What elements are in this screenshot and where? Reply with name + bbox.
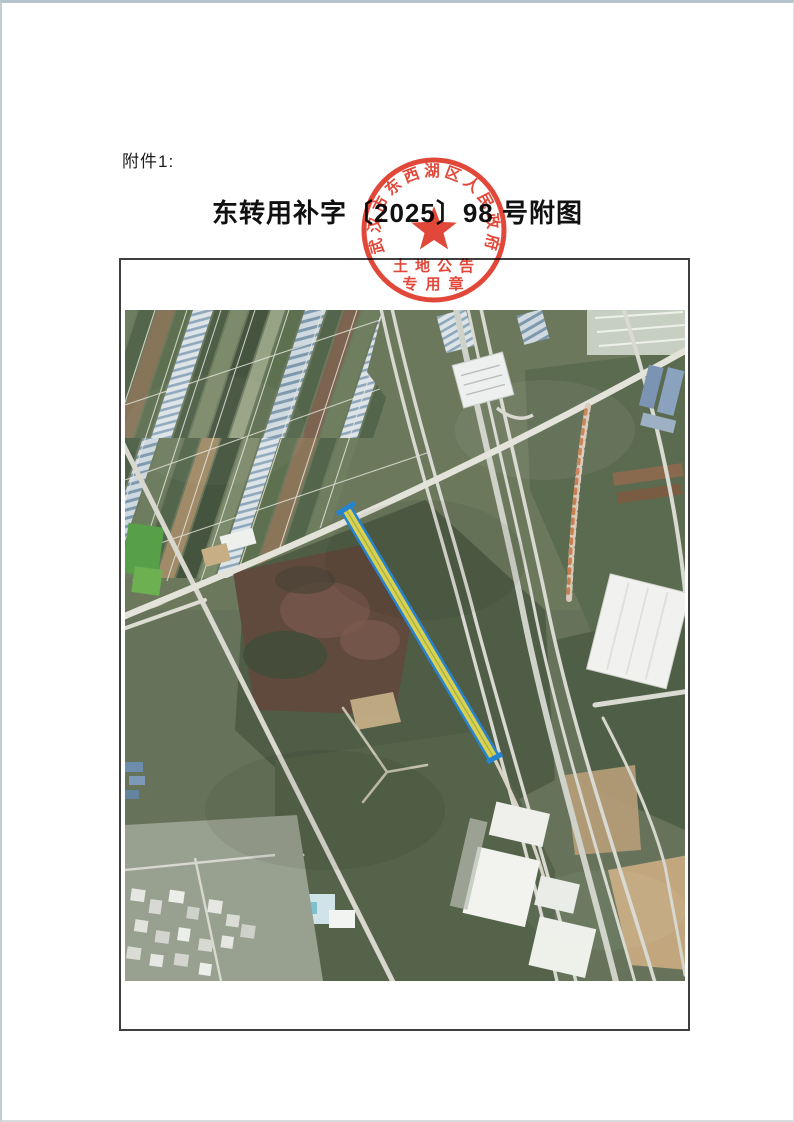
star-icon xyxy=(411,206,457,249)
map-frame xyxy=(119,258,690,1031)
official-seal: 武汉市东西湖区人民政府 土地公告 专用章 xyxy=(354,150,514,310)
satellite-map xyxy=(125,310,685,981)
attachment-label: 附件1: xyxy=(122,147,174,172)
seal-text-line2: 专用章 xyxy=(402,275,471,293)
document-page: 附件1: 东转用补字〔2025〕98 号附图 xyxy=(0,0,794,1122)
seal-text-line1: 土地公告 xyxy=(393,257,481,275)
